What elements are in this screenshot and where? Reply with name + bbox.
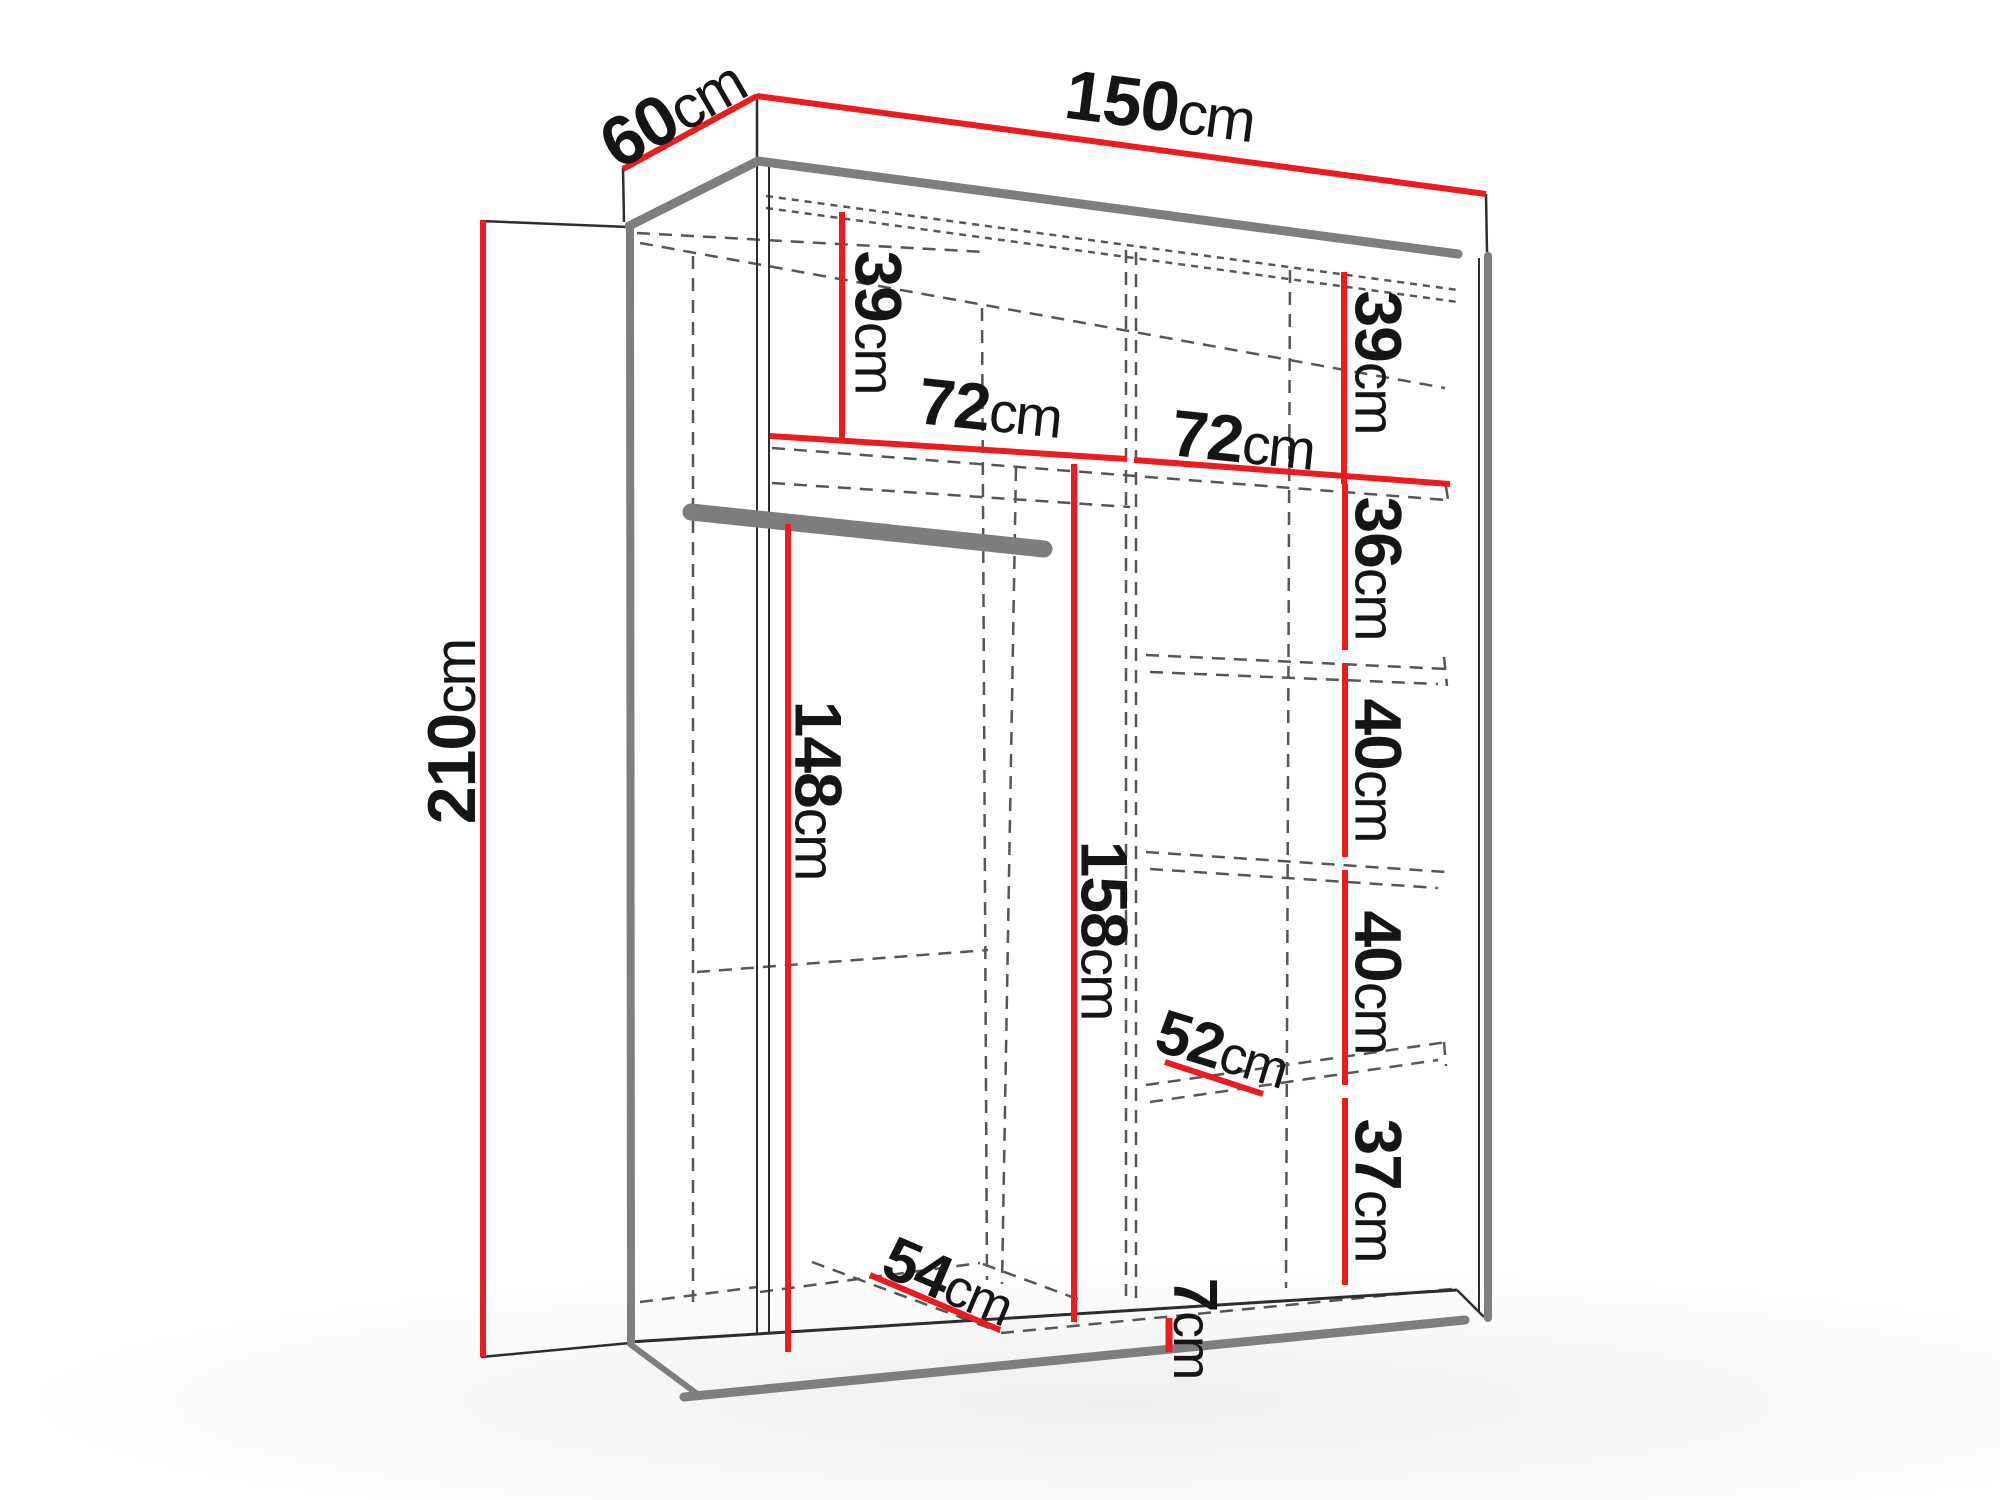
dim-unit: cm (1342, 770, 1405, 842)
dim-value: 158 (1067, 841, 1141, 948)
dim-label-40-b: 40cm (1345, 910, 1412, 1053)
dim-unit: cm (423, 640, 488, 714)
left-front-edge (630, 226, 631, 1342)
left-mid-back-line (697, 950, 988, 972)
dim-unit: cm (1068, 948, 1131, 1020)
dim-value: 40 (1341, 698, 1415, 769)
dim-value: 72 (1168, 395, 1247, 476)
dim-value: 37 (1341, 1118, 1415, 1189)
dim-value: 150 (1061, 55, 1184, 147)
dim-label-158: 158cm (1071, 841, 1138, 1020)
top-shelf-right-cap (1446, 486, 1448, 500)
plinth-left-bevel (630, 1344, 700, 1396)
interior-back-top-edge (640, 243, 1445, 388)
shelf4-right-cap (1444, 1042, 1446, 1066)
dim-unit: cm (1239, 413, 1317, 483)
dim-label-37: 37cm (1345, 1118, 1412, 1261)
dim-unit: cm (1342, 1190, 1405, 1262)
shelf2-right-cap (1444, 657, 1447, 686)
dim-unit: cm (1342, 568, 1405, 640)
dim-label-40-a: 40cm (1345, 698, 1412, 841)
hanging-rail (691, 512, 1044, 549)
top-right-cap (1486, 194, 1487, 252)
dim-unit: cm (1162, 1311, 1221, 1378)
interior-side-top-edge (637, 233, 985, 252)
dim-unit: cm (1342, 362, 1405, 434)
dim-value: 39 (1341, 290, 1415, 361)
wardrobe-dimension-diagram: 150cm 60cm 210cm 39cm 39cm 72cm 72cm 36c… (0, 0, 2000, 1500)
dim-value: 40 (1341, 910, 1415, 981)
dim-unit: cm (782, 808, 845, 880)
dim-label-72-left: 72cm (915, 367, 1064, 448)
floor-back-left-edge (640, 1287, 757, 1302)
left-compartment-back-edge (982, 308, 987, 1280)
shelf2-under-edge (1150, 672, 1438, 684)
dim-value: 36 (1341, 496, 1415, 567)
dim-label-7: 7cm (1163, 1278, 1225, 1379)
dim-value: 148 (781, 701, 855, 808)
dim-label-148: 148cm (785, 701, 852, 880)
dim-label-36: 36cm (1345, 496, 1412, 639)
shelf3-front-edge (1146, 852, 1447, 872)
partition-back-edge (1002, 468, 1016, 1284)
dim-unit: cm (986, 381, 1064, 451)
dim-value: 72 (915, 363, 994, 444)
dim-label-39-right: 39cm (1345, 290, 1412, 433)
top-front-left-edge (629, 161, 758, 226)
dim-label-210: 210cm (418, 640, 486, 824)
dim-unit: cm (842, 322, 905, 394)
shelf3-under-edge (1150, 869, 1438, 888)
dim-value: 39 (841, 250, 915, 321)
dim-unit: cm (1174, 79, 1258, 155)
extension-line-top-left (481, 221, 629, 227)
dim-value: 210 (414, 714, 490, 824)
dim-label-39-left: 39cm (845, 250, 912, 393)
dim-value: 7 (1160, 1278, 1229, 1311)
extension-line-bottom-left (481, 1343, 630, 1357)
dim-unit: cm (1342, 982, 1405, 1054)
hanging-rail-bar (691, 512, 1044, 549)
dim-label-72-right: 72cm (1168, 399, 1317, 480)
shelf2-front-edge (1146, 655, 1447, 669)
